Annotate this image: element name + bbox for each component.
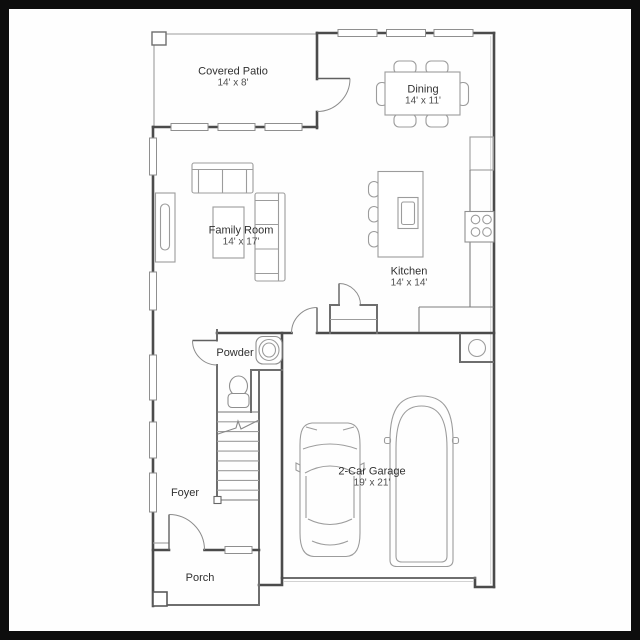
car-icon bbox=[296, 423, 364, 557]
sink-round-icon bbox=[256, 337, 282, 365]
stairs bbox=[214, 412, 259, 504]
loveseat-icon bbox=[192, 163, 253, 193]
kitchen-island-icon bbox=[378, 172, 423, 258]
tv-console-icon bbox=[156, 193, 176, 262]
sofa-icon bbox=[255, 193, 285, 281]
water-heater-icon bbox=[460, 335, 493, 363]
pantry bbox=[330, 305, 377, 333]
family-room-furniture bbox=[156, 163, 286, 281]
refrigerator-icon bbox=[470, 137, 494, 170]
stove-icon bbox=[465, 212, 494, 243]
toilet-icon bbox=[228, 376, 249, 408]
truck-icon bbox=[385, 396, 459, 567]
dining-set-icon bbox=[377, 61, 469, 127]
coffee-table-icon bbox=[213, 207, 244, 258]
patio-outline bbox=[152, 32, 317, 127]
floorplan-image: Covered Patio 14' x 8' Dining 14' x 11' … bbox=[0, 0, 640, 640]
dining-table-icon bbox=[385, 72, 460, 115]
floorplan-drawing bbox=[0, 0, 640, 640]
doors bbox=[169, 79, 361, 551]
kitchen-fixtures bbox=[369, 137, 495, 332]
stair-newel-post bbox=[214, 497, 221, 504]
